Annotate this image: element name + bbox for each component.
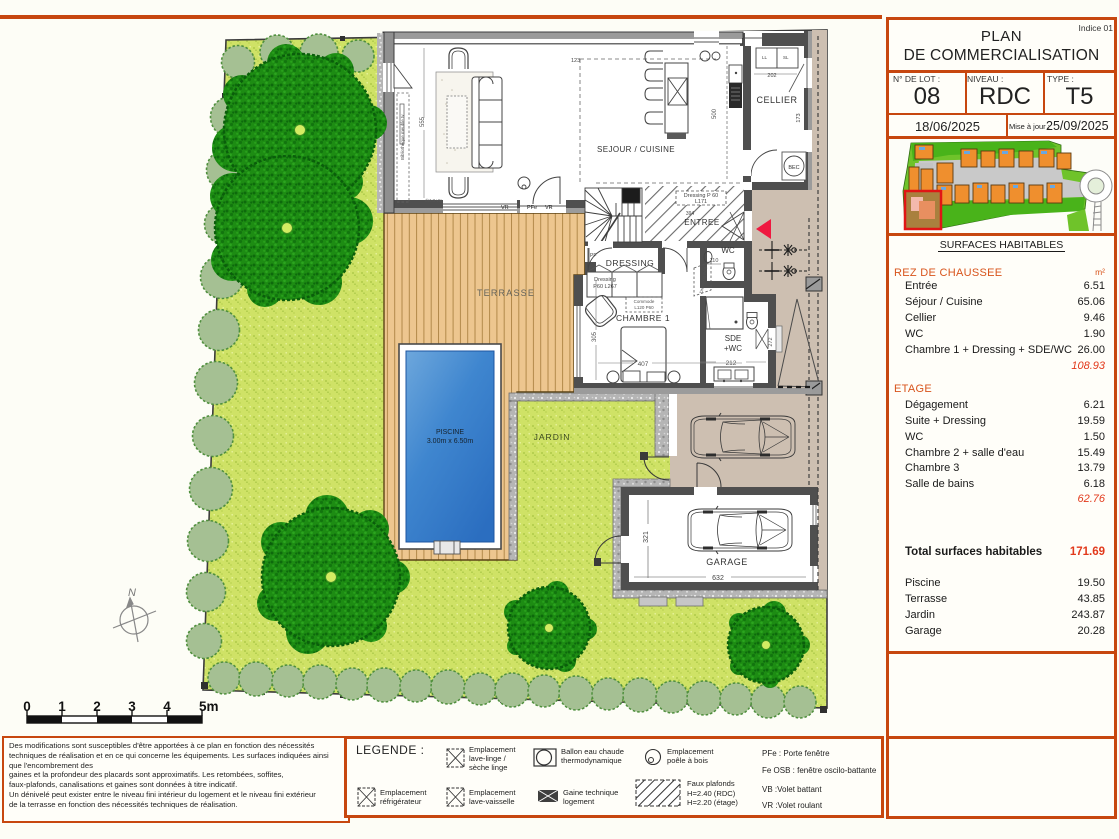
svg-text:4: 4 xyxy=(163,699,171,714)
svg-text:P60 L267: P60 L267 xyxy=(593,284,617,290)
svg-text:272: 272 xyxy=(768,337,774,346)
svg-text:CELLIER: CELLIER xyxy=(756,95,797,105)
svg-text:2: 2 xyxy=(93,699,101,714)
svg-text:173: 173 xyxy=(796,113,802,122)
svg-text:LL: LL xyxy=(762,55,768,60)
svg-text:L120 P60: L120 P60 xyxy=(634,305,654,310)
svg-text:305: 305 xyxy=(592,331,598,342)
svg-text:N: N xyxy=(128,587,136,599)
svg-text:3.00m x 6.50m: 3.00m x 6.50m xyxy=(427,438,473,445)
svg-text:PF: PF xyxy=(590,253,596,259)
svg-text:500: 500 xyxy=(712,108,718,119)
svg-text:SEJOUR / CUISINE: SEJOUR / CUISINE xyxy=(597,145,675,154)
svg-text:212: 212 xyxy=(726,360,737,367)
svg-text:BEC: BEC xyxy=(788,165,799,171)
svg-text:+WC: +WC xyxy=(724,344,742,353)
svg-text:321: 321 xyxy=(643,531,650,543)
svg-text:123: 123 xyxy=(571,58,580,64)
svg-text:VR: VR xyxy=(545,205,553,211)
svg-text:VR: VR xyxy=(501,205,509,211)
svg-text:ENTREE: ENTREE xyxy=(684,218,719,227)
svg-text:Dressing: Dressing xyxy=(594,277,616,283)
svg-text:JARDIN: JARDIN xyxy=(534,432,571,442)
svg-text:1: 1 xyxy=(58,699,66,714)
svg-text:Bibliothèque meuble tv: Bibliothèque meuble tv xyxy=(400,114,405,160)
svg-text:555: 555 xyxy=(420,116,426,127)
svg-text:394: 394 xyxy=(686,211,695,217)
svg-text:3: 3 xyxy=(128,699,136,714)
svg-text:407: 407 xyxy=(638,361,649,368)
svg-text:202: 202 xyxy=(767,73,776,79)
svg-text:0: 0 xyxy=(23,699,31,714)
svg-text:SDE: SDE xyxy=(725,334,741,343)
svg-text:Commode: Commode xyxy=(634,299,655,304)
svg-text:CHAMBRE 1: CHAMBRE 1 xyxy=(616,313,670,323)
svg-text:PFe: PFe xyxy=(527,205,537,211)
svg-text:TERRASSE: TERRASSE xyxy=(477,288,535,298)
svg-text:GARAGE: GARAGE xyxy=(706,557,748,567)
svg-text:L171: L171 xyxy=(695,199,707,205)
svg-text:WC: WC xyxy=(721,246,735,255)
svg-text:5m: 5m xyxy=(199,699,219,714)
svg-text:PISCINE: PISCINE xyxy=(436,429,464,436)
svg-text:det 3 vtx: det 3 vtx xyxy=(425,198,443,203)
svg-text:SL: SL xyxy=(783,55,789,60)
svg-text:632: 632 xyxy=(712,575,724,582)
